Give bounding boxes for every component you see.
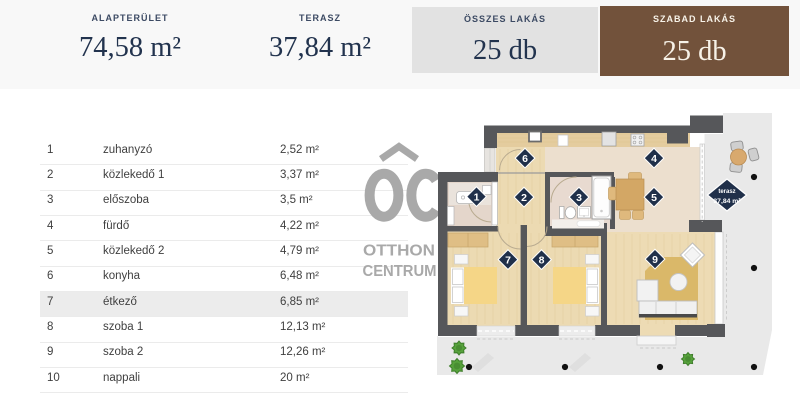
svg-text:terasz: terasz — [718, 189, 735, 195]
svg-text:37,84 m²: 37,84 m² — [713, 198, 741, 205]
svg-text:8: 8 — [539, 254, 545, 266]
svg-text:4: 4 — [651, 153, 657, 165]
svg-text:7: 7 — [505, 254, 511, 266]
svg-text:3: 3 — [576, 192, 582, 204]
svg-text:1: 1 — [474, 191, 480, 203]
svg-text:2: 2 — [521, 192, 527, 204]
svg-text:5: 5 — [651, 192, 657, 204]
svg-text:9: 9 — [652, 254, 658, 266]
svg-text:6: 6 — [522, 153, 528, 165]
